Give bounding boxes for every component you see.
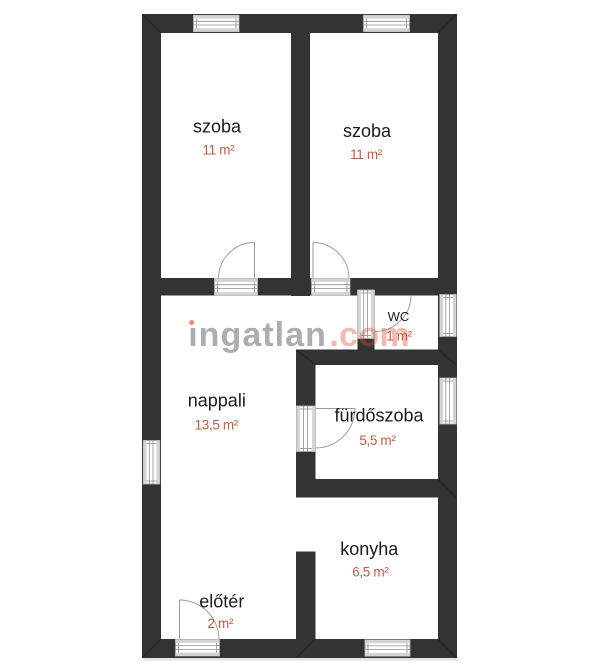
- svg-text:nappali: nappali: [188, 391, 246, 411]
- svg-text:13,5 m²: 13,5 m²: [195, 417, 239, 432]
- svg-text:11 m²: 11 m²: [203, 142, 236, 157]
- svg-text:szoba: szoba: [193, 116, 242, 136]
- svg-text:fürdőszoba: fürdőszoba: [334, 406, 424, 426]
- svg-text:2 m²: 2 m²: [207, 616, 233, 631]
- svg-text:konyha: konyha: [340, 539, 399, 559]
- svg-text:előtér: előtér: [199, 592, 244, 612]
- svg-text:11 m²: 11 m²: [350, 147, 383, 162]
- svg-text:5,5 m²: 5,5 m²: [359, 433, 396, 448]
- svg-text:szoba: szoba: [343, 121, 392, 141]
- svg-text:.com: .com: [329, 316, 410, 354]
- svg-text:ıngatlan: ıngatlan: [188, 316, 327, 354]
- svg-text:6,5 m²: 6,5 m²: [352, 565, 389, 580]
